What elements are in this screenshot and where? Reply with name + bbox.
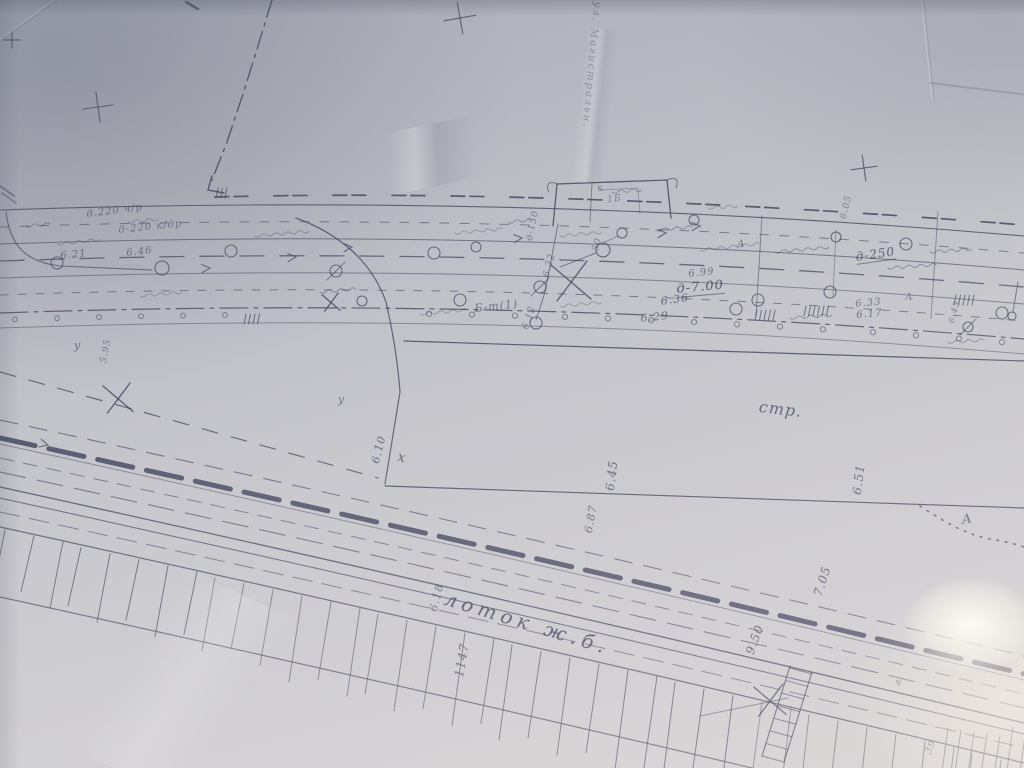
pipe-d-220-chr: д.220 ч/р [86, 203, 144, 220]
elev-7-05: 7.05 [812, 565, 833, 598]
elev-6-32: 6.32 [543, 253, 558, 279]
elev-6-45: 6.45 [604, 460, 620, 492]
pipe-d-150: д-150 [526, 210, 541, 242]
elev-6-29: 6.29 [640, 310, 669, 324]
elev-9-50: 9.50 [744, 623, 766, 656]
elev-50: 50 [592, 237, 604, 252]
elev-6-36: 6.36 [660, 292, 690, 307]
annotation-labels: ул. Магистральн.лоток ж.б.стр.6.456.516.… [0, 0, 1024, 768]
elev-6-21: 6.21 [60, 249, 87, 262]
elev-6-51: 6.51 [851, 464, 867, 496]
pipe-d-250: д-250 [855, 245, 896, 264]
dim-1147: 1147 [453, 642, 471, 678]
bump-1b: 1Б [607, 195, 622, 205]
mark-u-1: у [338, 394, 345, 405]
pipe-d-220-kdr: д-220 к/др [118, 219, 183, 236]
elev-6-10: 6.10 [370, 434, 388, 464]
elev-5-95: 5.95 [100, 338, 114, 363]
elev-6-43: 6.43 [948, 300, 962, 324]
mark-x: х [396, 450, 408, 466]
mark-ch: ч [894, 678, 903, 689]
elev-6-46: 6.46 [126, 246, 153, 259]
blueprint-photo: ул. Магистральн.лоток ж.б.стр.6.456.516.… [0, 0, 1024, 768]
num-39: 39 [924, 739, 939, 757]
point-a-3: А [905, 293, 914, 303]
point-a-1: А [961, 512, 974, 526]
elev-6-17: 6.17 [856, 309, 883, 321]
bump-k: к [597, 184, 604, 194]
point-a-2: А [737, 240, 746, 250]
mark-u-2: у [74, 340, 81, 351]
paper-sheet: ул. Магистральн.лоток ж.б.стр.6.456.516.… [0, 0, 1024, 768]
note-bt1: Б-т(1) [474, 298, 519, 314]
elev-6-05: 6.05 [840, 195, 855, 221]
elev-6-12: 6.12 [522, 305, 538, 331]
elev-6-87: 6.87 [583, 504, 599, 534]
street-name-label: ул. Магистральн. [580, 1, 601, 129]
str-building-label: стр. [758, 399, 803, 420]
